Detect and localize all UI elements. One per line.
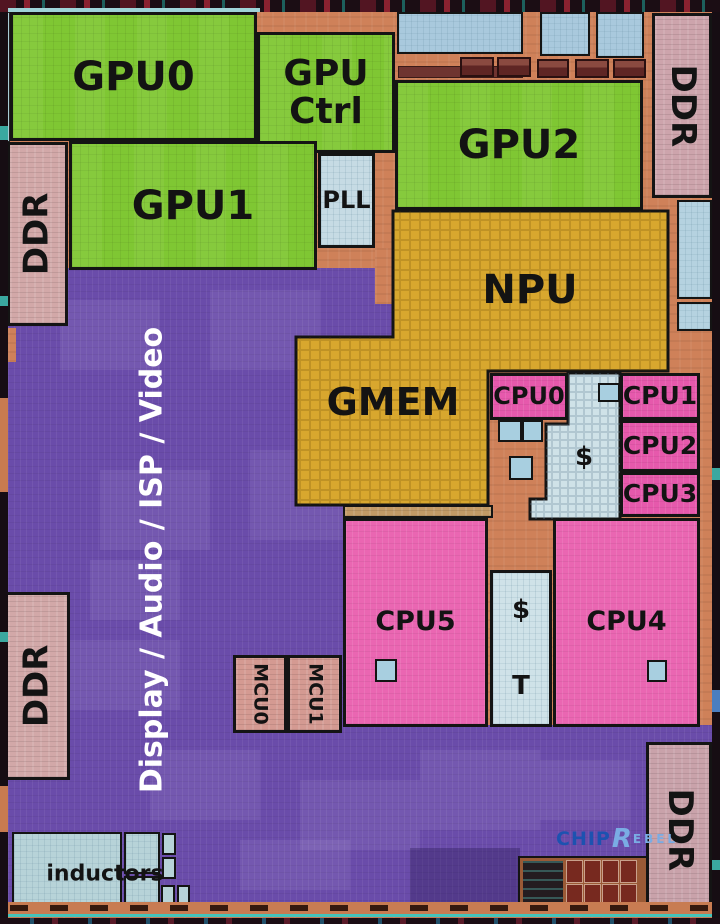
analog-block (596, 12, 644, 58)
region-cpu1: CPU1 (620, 373, 700, 420)
coil-structure (613, 59, 646, 78)
edge-segment (712, 860, 720, 870)
edge-segment (0, 296, 8, 306)
sram-block (509, 456, 533, 480)
watermark-ebel: EBEL (633, 832, 678, 846)
sram-block (498, 420, 522, 442)
sram-block (598, 383, 620, 402)
edge-segment (0, 786, 8, 832)
watermark-r: R (612, 824, 632, 854)
edge-highlight (8, 8, 260, 12)
seal-ring-line (8, 914, 712, 917)
edge-segment (0, 632, 8, 642)
region-inductors (12, 832, 122, 908)
analog-strip (677, 302, 712, 331)
region-ddr-bottom-left: DDR (5, 592, 70, 780)
region-shared-cache: $ T (490, 570, 552, 727)
analog-strip (677, 200, 712, 299)
label-cpu2: CPU2 (623, 433, 697, 459)
label-ddr-bottom-left: DDR (20, 645, 56, 728)
region-gpu0: GPU0 (10, 12, 257, 141)
region-gpu-ctrl: GPUCtrl (257, 32, 395, 153)
inductor-block (162, 857, 176, 879)
label-gpu1: GPU1 (132, 185, 254, 227)
watermark-chip: CHIP (556, 828, 611, 850)
edge-segment (712, 690, 720, 712)
label-cache-shared: $ (512, 597, 530, 624)
region-ddr-top-right: DDR (652, 13, 712, 198)
die-edge-right (712, 12, 720, 918)
region-cpu2: CPU2 (620, 420, 700, 472)
sram-block (647, 660, 667, 682)
label-ddr-top-left: DDR (20, 193, 56, 276)
label-ddr-top-right: DDR (664, 64, 700, 147)
sram-block (522, 420, 543, 442)
region-gpu2: GPU2 (395, 80, 643, 210)
die-edge-bottom (0, 918, 720, 924)
region-gpu1: GPU1 (69, 141, 317, 270)
region-mcu1: MCU1 (287, 655, 342, 733)
label-cpu4: CPU4 (586, 608, 666, 636)
die-photo: GPU0 GPUCtrl GPU1 GPU2 PLL DDR DDR DDR C… (0, 0, 720, 924)
coil-structure (537, 59, 569, 78)
label-gpu-ctrl: GPUCtrl (283, 55, 368, 131)
label-cpu5: CPU5 (375, 608, 455, 636)
edge-segment (0, 126, 8, 140)
inductor-block (162, 833, 176, 855)
io-patch (8, 328, 16, 362)
region-cpu5: CPU5 (343, 518, 488, 727)
coil-structure (460, 57, 494, 77)
io-patch (375, 248, 393, 304)
edge-segment (0, 398, 8, 492)
label-pll: PLL (322, 188, 370, 213)
coil-structure (497, 57, 531, 77)
fuse-cell (602, 860, 619, 883)
coil-structure (575, 59, 609, 78)
analog-block (540, 12, 590, 56)
fuse-cell (620, 860, 637, 883)
label-mcu1: MCU1 (305, 663, 325, 725)
label-cpu1: CPU1 (623, 383, 697, 409)
chiprebel-watermark: CHIP R EBEL (556, 824, 678, 854)
label-cache-t: T (512, 673, 530, 700)
label-gpu0: GPU0 (72, 56, 194, 98)
region-pll: PLL (318, 153, 375, 248)
region-mcu0: MCU0 (233, 655, 287, 733)
label-cpu0: CPU0 (493, 384, 564, 409)
fuse-cell (566, 860, 583, 883)
bottom-io-pads (10, 905, 710, 911)
inductor-block (124, 876, 160, 904)
label-gpu2: GPU2 (458, 124, 580, 166)
sram-block (375, 659, 397, 682)
region-cpu3: CPU3 (620, 472, 700, 517)
label-cpu3: CPU3 (623, 481, 697, 507)
region-ddr-top-left: DDR (7, 142, 68, 326)
region-cpu0: CPU0 (490, 373, 568, 420)
label-mcu0: MCU0 (250, 663, 270, 725)
fuse-cell (584, 860, 601, 883)
analog-block (397, 12, 523, 54)
fuse-dark-block (523, 861, 563, 908)
inductor-block (124, 832, 160, 874)
io-strip (343, 505, 493, 518)
region-cpu4: CPU4 (553, 518, 700, 727)
edge-segment (712, 468, 720, 480)
